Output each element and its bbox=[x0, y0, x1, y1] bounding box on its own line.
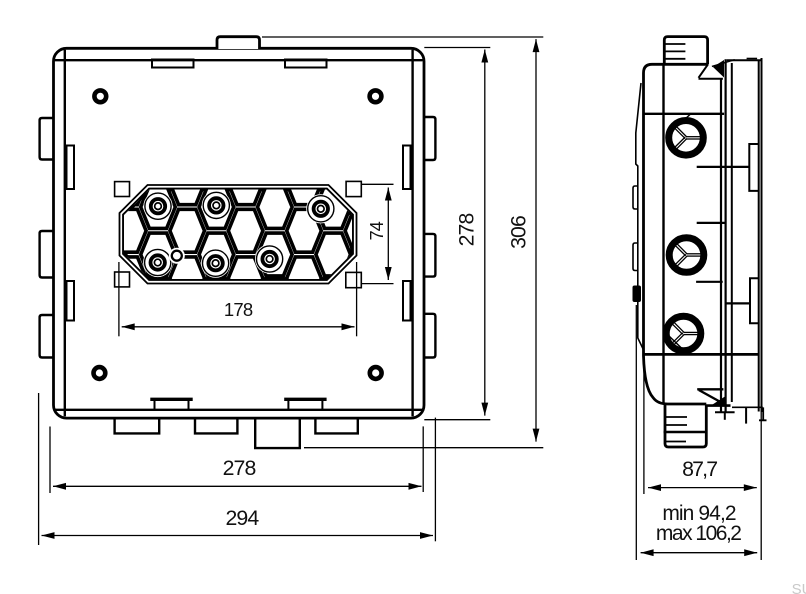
svg-text:278: 278 bbox=[454, 214, 478, 247]
svg-text:306: 306 bbox=[506, 216, 530, 249]
svg-text:278: 278 bbox=[223, 456, 256, 480]
svg-text:max 106,2: max 106,2 bbox=[656, 522, 741, 545]
svg-text:SU: SU bbox=[792, 581, 806, 594]
svg-text:178: 178 bbox=[224, 299, 253, 320]
svg-text:294: 294 bbox=[225, 506, 259, 530]
svg-text:87,7: 87,7 bbox=[682, 457, 717, 481]
svg-text:74: 74 bbox=[367, 221, 387, 240]
